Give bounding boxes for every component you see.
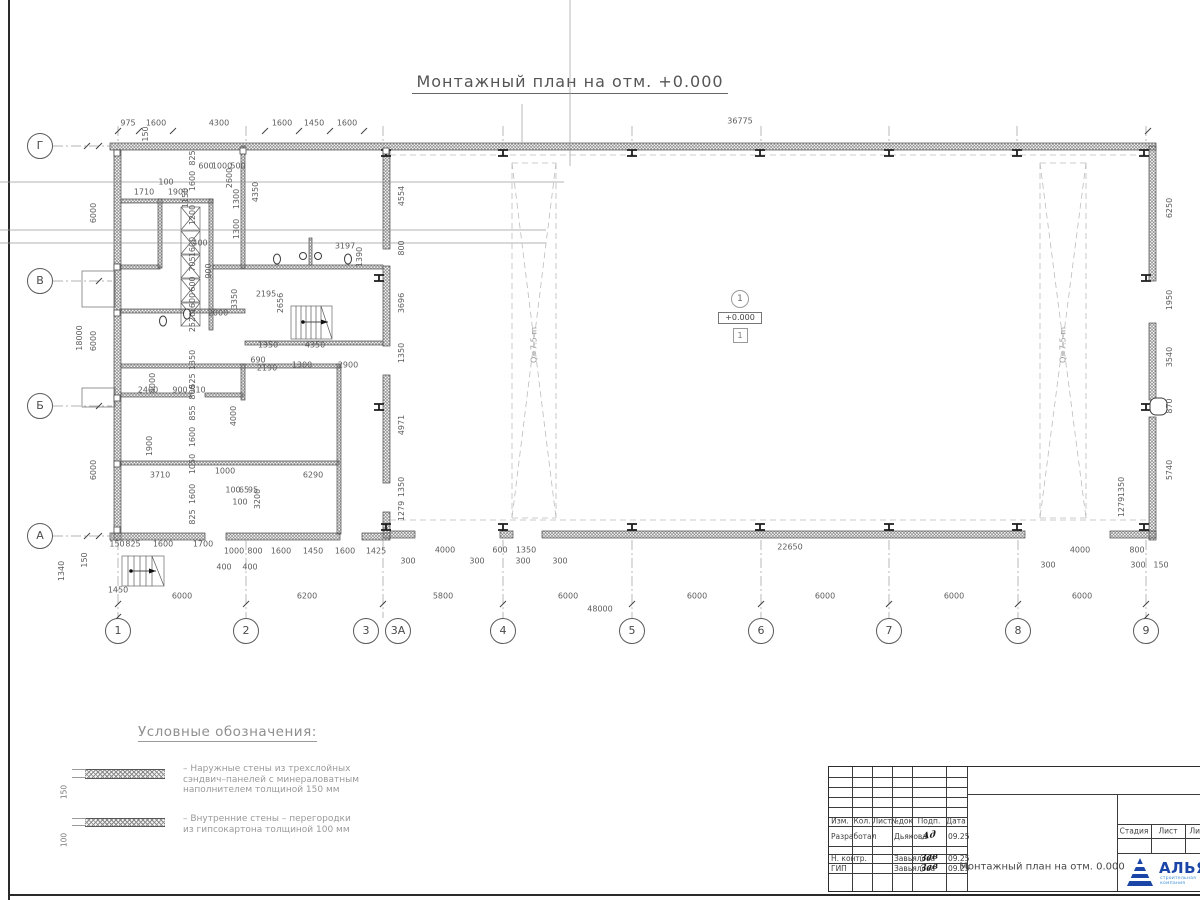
tb-header-data: Дата (946, 817, 965, 826)
dim-label: 1300 (292, 362, 312, 370)
tb-header-list: Лист (872, 817, 891, 826)
dim-label: 300 (1130, 562, 1145, 570)
dim-label: 500 (230, 163, 245, 171)
axis-bubble-2: 2 (233, 618, 259, 644)
dim-label: 825 (189, 509, 197, 524)
dim-label: 825 (125, 541, 140, 549)
tb-row-role: Разработал (831, 832, 876, 841)
tb-stage-header: Лист (1158, 827, 1177, 836)
tb-line (1185, 824, 1186, 853)
dim-label: 1900 (146, 436, 154, 456)
dim-label: 2900 (338, 362, 358, 370)
company-logo-subtitle: строительная компания (1160, 876, 1200, 886)
dim-label: 1600 (189, 293, 197, 313)
dim-label: 4000 (435, 547, 455, 555)
tb-header-izm: Изм. (831, 817, 849, 826)
plan-canvas (0, 0, 1200, 680)
axis-bubble-8: 8 (1005, 618, 1031, 644)
dim-label: 6000 (90, 203, 98, 223)
dim-label: 1700 (193, 541, 213, 549)
dim-label: 300 (469, 558, 484, 566)
axis-bubble-5: 5 (619, 618, 645, 644)
dim-label: 6000 (1072, 593, 1092, 601)
dim-label: 1340 (58, 561, 66, 581)
dim-label: 1350 (398, 477, 406, 497)
dim-label: 3350 (231, 289, 239, 309)
dim-label: 1000 (215, 468, 235, 476)
dim-label: 900 (205, 263, 213, 278)
sheet-frame-bottom (8, 894, 1200, 896)
dim-label: 6250 (1166, 198, 1174, 218)
dim-label: 1450 (304, 120, 324, 128)
dim-label: 4000 (1070, 547, 1090, 555)
dim-label: 36775 (727, 118, 752, 126)
legend-whisker (72, 818, 86, 819)
level-mark: 1 +0.000 1 (708, 290, 772, 343)
dim-label: 1200 (189, 205, 197, 225)
dim-label: 6200 (297, 593, 317, 601)
level-mark-elevation: +0.000 (718, 312, 762, 324)
dim-label: 1300 (233, 219, 241, 239)
dim-label: 150 (81, 552, 89, 567)
dim-label: 6000 (815, 593, 835, 601)
dim-label: 300 (1040, 562, 1055, 570)
dim-label: 3200 (254, 489, 262, 509)
dim-label: 1600 (335, 548, 355, 556)
axis-bubble-6: 6 (748, 618, 774, 644)
dim-label: 1050 (189, 454, 197, 474)
dim-label: 6000 (944, 593, 964, 601)
legend-whisker (72, 769, 86, 770)
dim-label: 1350 (189, 350, 197, 370)
legend-outer-wall-thickness: 150 (60, 785, 69, 799)
dim-label: 1279 (398, 501, 406, 521)
level-mark-room-number: 1 (733, 328, 748, 343)
dim-label: 705 (189, 256, 197, 271)
dim-label: 6000 (90, 460, 98, 480)
dim-label: 300 (400, 558, 415, 566)
dim-label: 1350 (516, 547, 536, 555)
dim-label: 4000 (230, 406, 238, 426)
tb-line (1117, 838, 1200, 839)
dim-label: 600 (189, 276, 197, 291)
floor-plan: 1 +0.000 1 97516004300160014501600367751… (0, 0, 1200, 680)
dim-label: 4350 (252, 182, 260, 202)
crane-capacity-label: Q=7.5 m (1059, 327, 1068, 363)
legend-heading: Условные обозначения: (138, 724, 317, 742)
tb-line (1117, 853, 1200, 854)
company-logo-icon (1126, 857, 1154, 887)
legend-inner-wall-sample (85, 818, 165, 827)
dim-label: 3540 (1166, 347, 1174, 367)
dim-label: 6290 (303, 472, 323, 480)
dim-label: 6000 (558, 593, 578, 601)
tb-line (829, 777, 967, 778)
dim-label: 4554 (398, 186, 406, 206)
dim-label: 2600 (226, 168, 234, 188)
dim-label: 4000 (149, 373, 157, 393)
dim-label: 4300 (209, 120, 229, 128)
axis-bubble-7: 7 (876, 618, 902, 644)
axis-bubble-В: В (27, 268, 53, 294)
dim-label: 1600 (272, 120, 292, 128)
dim-label: 1450 (303, 548, 323, 556)
dim-label: 5800 (433, 593, 453, 601)
legend-outer-wall-text: – Наружные стены из трехслойных сэндвич–… (183, 764, 359, 796)
dim-label: 400 (216, 564, 231, 572)
dim-label: 1600 (271, 548, 291, 556)
dim-label: 1600 (189, 427, 197, 447)
dim-label: 48000 (587, 606, 612, 614)
tb-line (829, 846, 967, 847)
tb-row-signature: Ад (922, 830, 936, 843)
dim-label: 1710 (134, 189, 154, 197)
axis-bubble-Б: Б (27, 393, 53, 419)
axis-bubble-Г: Г (27, 133, 53, 159)
tb-row-role: ГИП (831, 864, 847, 873)
legend-whisker (72, 825, 86, 826)
dim-label: 2656 (277, 293, 285, 313)
dim-label: 18000 (76, 325, 84, 350)
axis-bubble-А: А (27, 523, 53, 549)
dim-label: 870 (1166, 398, 1174, 413)
tb-line (829, 787, 967, 788)
axis-bubble-4: 4 (490, 618, 516, 644)
company-logo-name: АЛЬЯНС (1159, 859, 1200, 877)
dim-label: 800 (398, 240, 406, 255)
tb-row-date: 09.25 (948, 832, 969, 841)
dim-label: 1350 (258, 342, 278, 350)
dim-label: 975 (120, 120, 135, 128)
crane-capacity-label: Q=7.5 m (530, 327, 539, 363)
dim-label: 2520 (189, 312, 197, 332)
dim-label: 2195 (256, 291, 276, 299)
dim-label: 400 (192, 240, 207, 248)
dim-label: 1950 (1166, 290, 1174, 310)
dim-label: 1600 (189, 484, 197, 504)
tb-doc-title: Монтажный план на отм. 0.000 (959, 862, 1124, 873)
dim-label: 1350 (1118, 477, 1126, 497)
dim-label: 3710 (150, 472, 170, 480)
tb-line (829, 826, 967, 827)
dim-label: 800 (247, 548, 262, 556)
tb-header-kol: Кол. (853, 817, 870, 826)
dim-label: 1150 (182, 188, 190, 208)
dim-label: 1300 (233, 189, 241, 209)
tb-line (1151, 824, 1152, 853)
axis-bubble-3: 3 (353, 618, 379, 644)
legend-whisker (72, 777, 86, 778)
dim-label: 150 (1153, 562, 1168, 570)
dim-label: 1000 (212, 163, 232, 171)
title-block: Изм. Кол. Лист №док Подп. Дата Разработа… (828, 766, 1200, 892)
dim-label: 2000 (208, 310, 228, 318)
dim-label: 600 (492, 547, 507, 555)
legend-outer-wall-sample (85, 769, 165, 779)
dim-label: 100 (232, 499, 247, 507)
dim-label: 150 (109, 541, 124, 549)
dim-label: 1000 (224, 548, 244, 556)
tb-header-podp: Подп. (918, 817, 941, 826)
tb-stage-header: Стадия (1120, 827, 1149, 836)
axis-bubble-9: 9 (1133, 618, 1159, 644)
dim-label: 150 (142, 126, 150, 141)
level-mark-axis-circle: 1 (731, 290, 749, 308)
dim-label: 100 (158, 179, 173, 187)
dim-label: 22650 (777, 544, 802, 552)
dim-label: 1600 (153, 541, 173, 549)
dim-label: 1350 (398, 343, 406, 363)
dim-label: 4971 (398, 415, 406, 435)
dim-label: 300 (515, 558, 530, 566)
dim-label: 1425 (366, 548, 386, 556)
dim-label: 1450 (108, 587, 128, 595)
dim-label: 3696 (398, 293, 406, 313)
tb-header-ndok: №док (891, 817, 913, 826)
dim-label: 1600 (337, 120, 357, 128)
dim-label: 825 (189, 150, 197, 165)
legend-inner-wall-thickness: 100 (60, 833, 69, 847)
dim-label: 1279 (1118, 497, 1126, 517)
dim-label: 2190 (257, 365, 277, 373)
dim-label: 400 (242, 564, 257, 572)
tb-line (967, 794, 1200, 795)
dim-label: 1390 (356, 247, 364, 267)
dim-label: 5740 (1166, 460, 1174, 480)
tb-line (1117, 824, 1200, 825)
dim-label: 1600 (189, 171, 197, 191)
tb-line (829, 873, 967, 874)
dim-label: 900 (172, 387, 187, 395)
tb-line (1117, 794, 1118, 891)
dim-label: 6000 (90, 331, 98, 351)
dim-label: 800 (1129, 547, 1144, 555)
axis-bubble-1: 1 (105, 618, 131, 644)
dim-label: 4350 (305, 342, 325, 350)
dim-label: 6000 (687, 593, 707, 601)
drawing-sheet: Монтажный план на отм. +0.000 1 +0.000 1… (0, 0, 1200, 900)
legend-inner-wall-text: – Внутренние стены – перегородки из гипс… (183, 814, 351, 835)
dim-label: 3197 (335, 243, 355, 251)
tb-line (829, 797, 967, 798)
tb-row-role: Н. контр. (831, 854, 867, 863)
dim-label: 6000 (172, 593, 192, 601)
dim-label: 300 (552, 558, 567, 566)
dim-label: 510 (190, 387, 205, 395)
dim-label: 855 (189, 405, 197, 420)
tb-line (829, 807, 967, 808)
tb-stage-header: Лист (1189, 827, 1200, 836)
axis-bubble-3А: 3А (385, 618, 411, 644)
